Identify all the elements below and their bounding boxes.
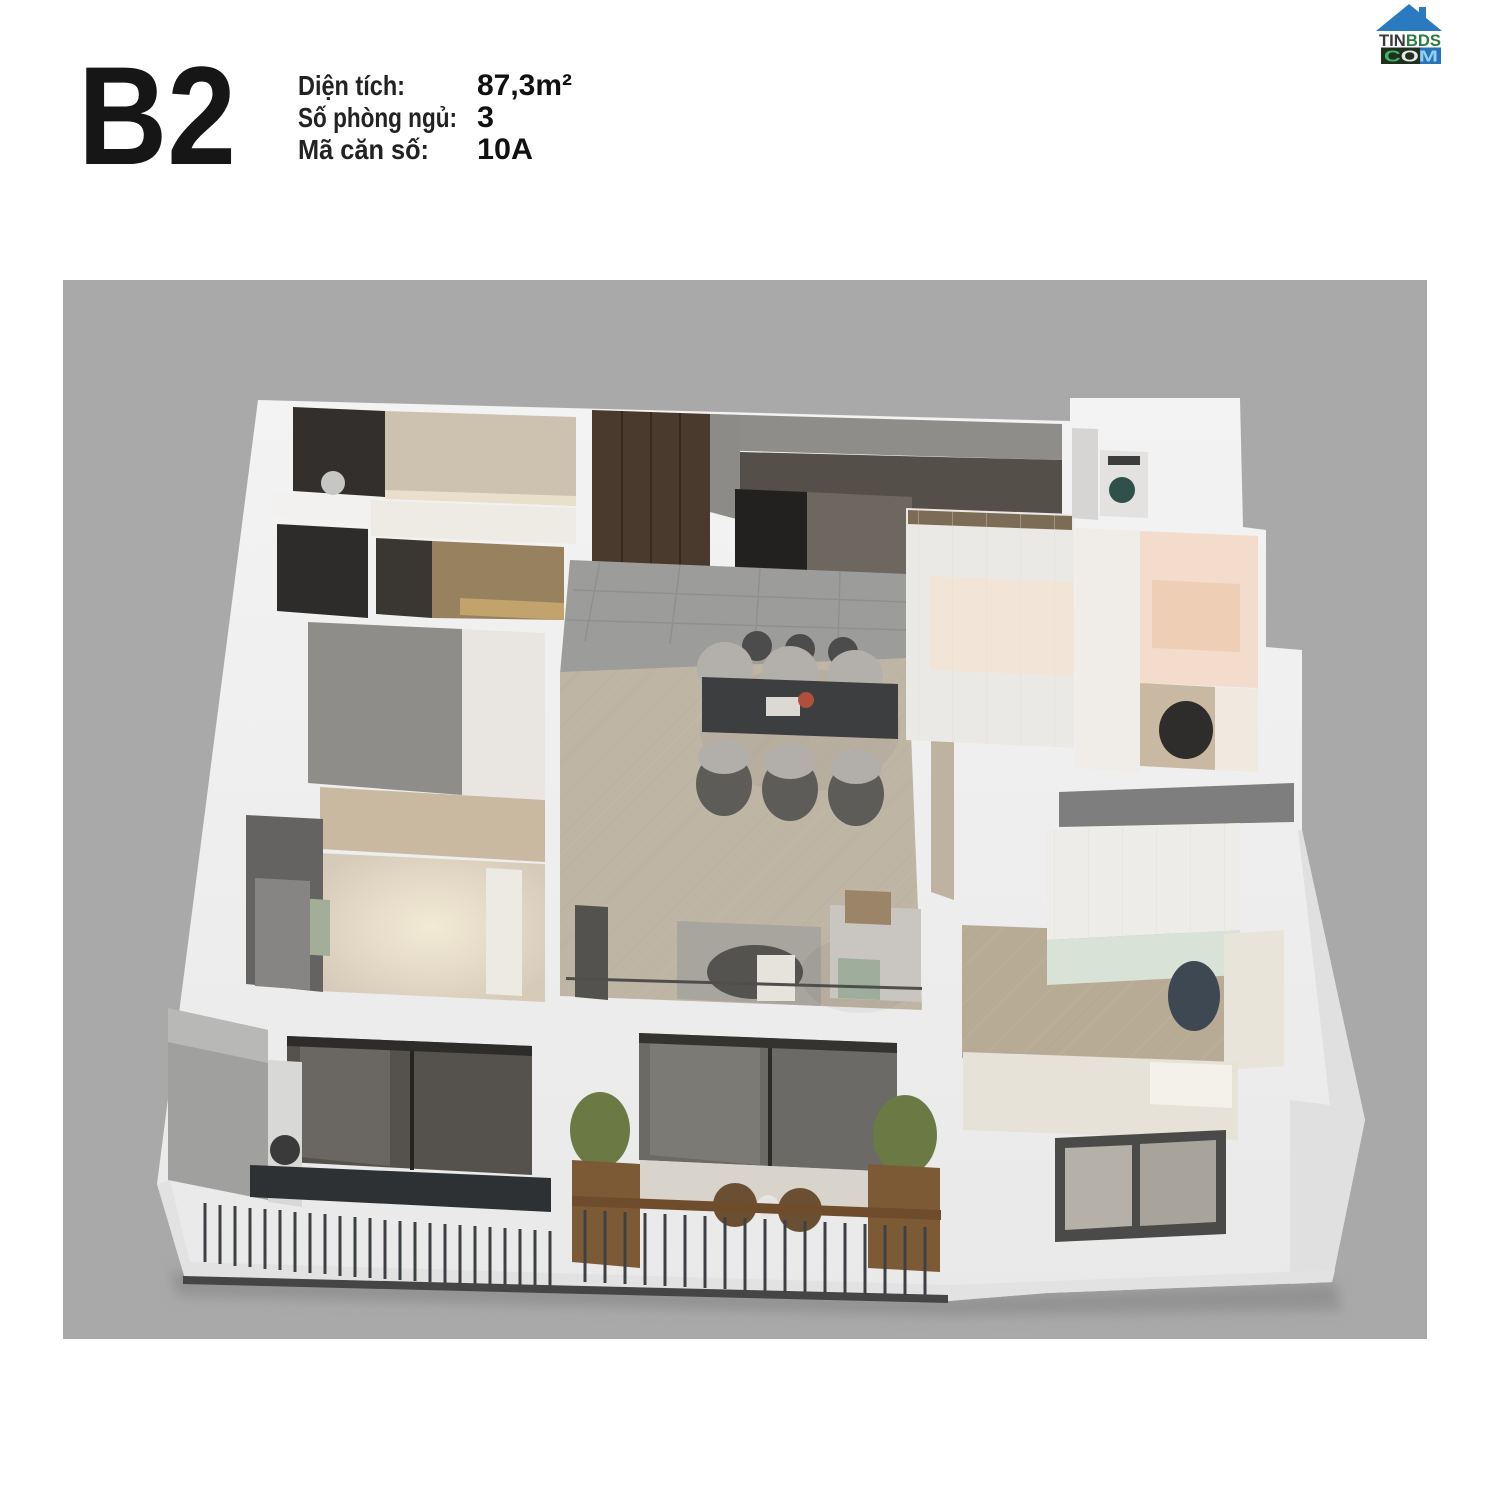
svg-text:87,3m²: 87,3m²: [477, 69, 572, 102]
svg-text:COM: COM: [1384, 49, 1438, 66]
svg-text:B2: B2: [78, 37, 236, 194]
svg-text:Diện tích:: Diện tích:: [298, 70, 405, 101]
svg-text:Mã căn số:: Mã căn số:: [298, 134, 429, 165]
svg-text:10A: 10A: [477, 133, 533, 166]
svg-text:TINBDS: TINBDS: [1379, 31, 1441, 50]
svg-text:Số phòng ngủ:: Số phòng ngủ:: [298, 102, 457, 133]
svg-text:3: 3: [477, 101, 494, 134]
